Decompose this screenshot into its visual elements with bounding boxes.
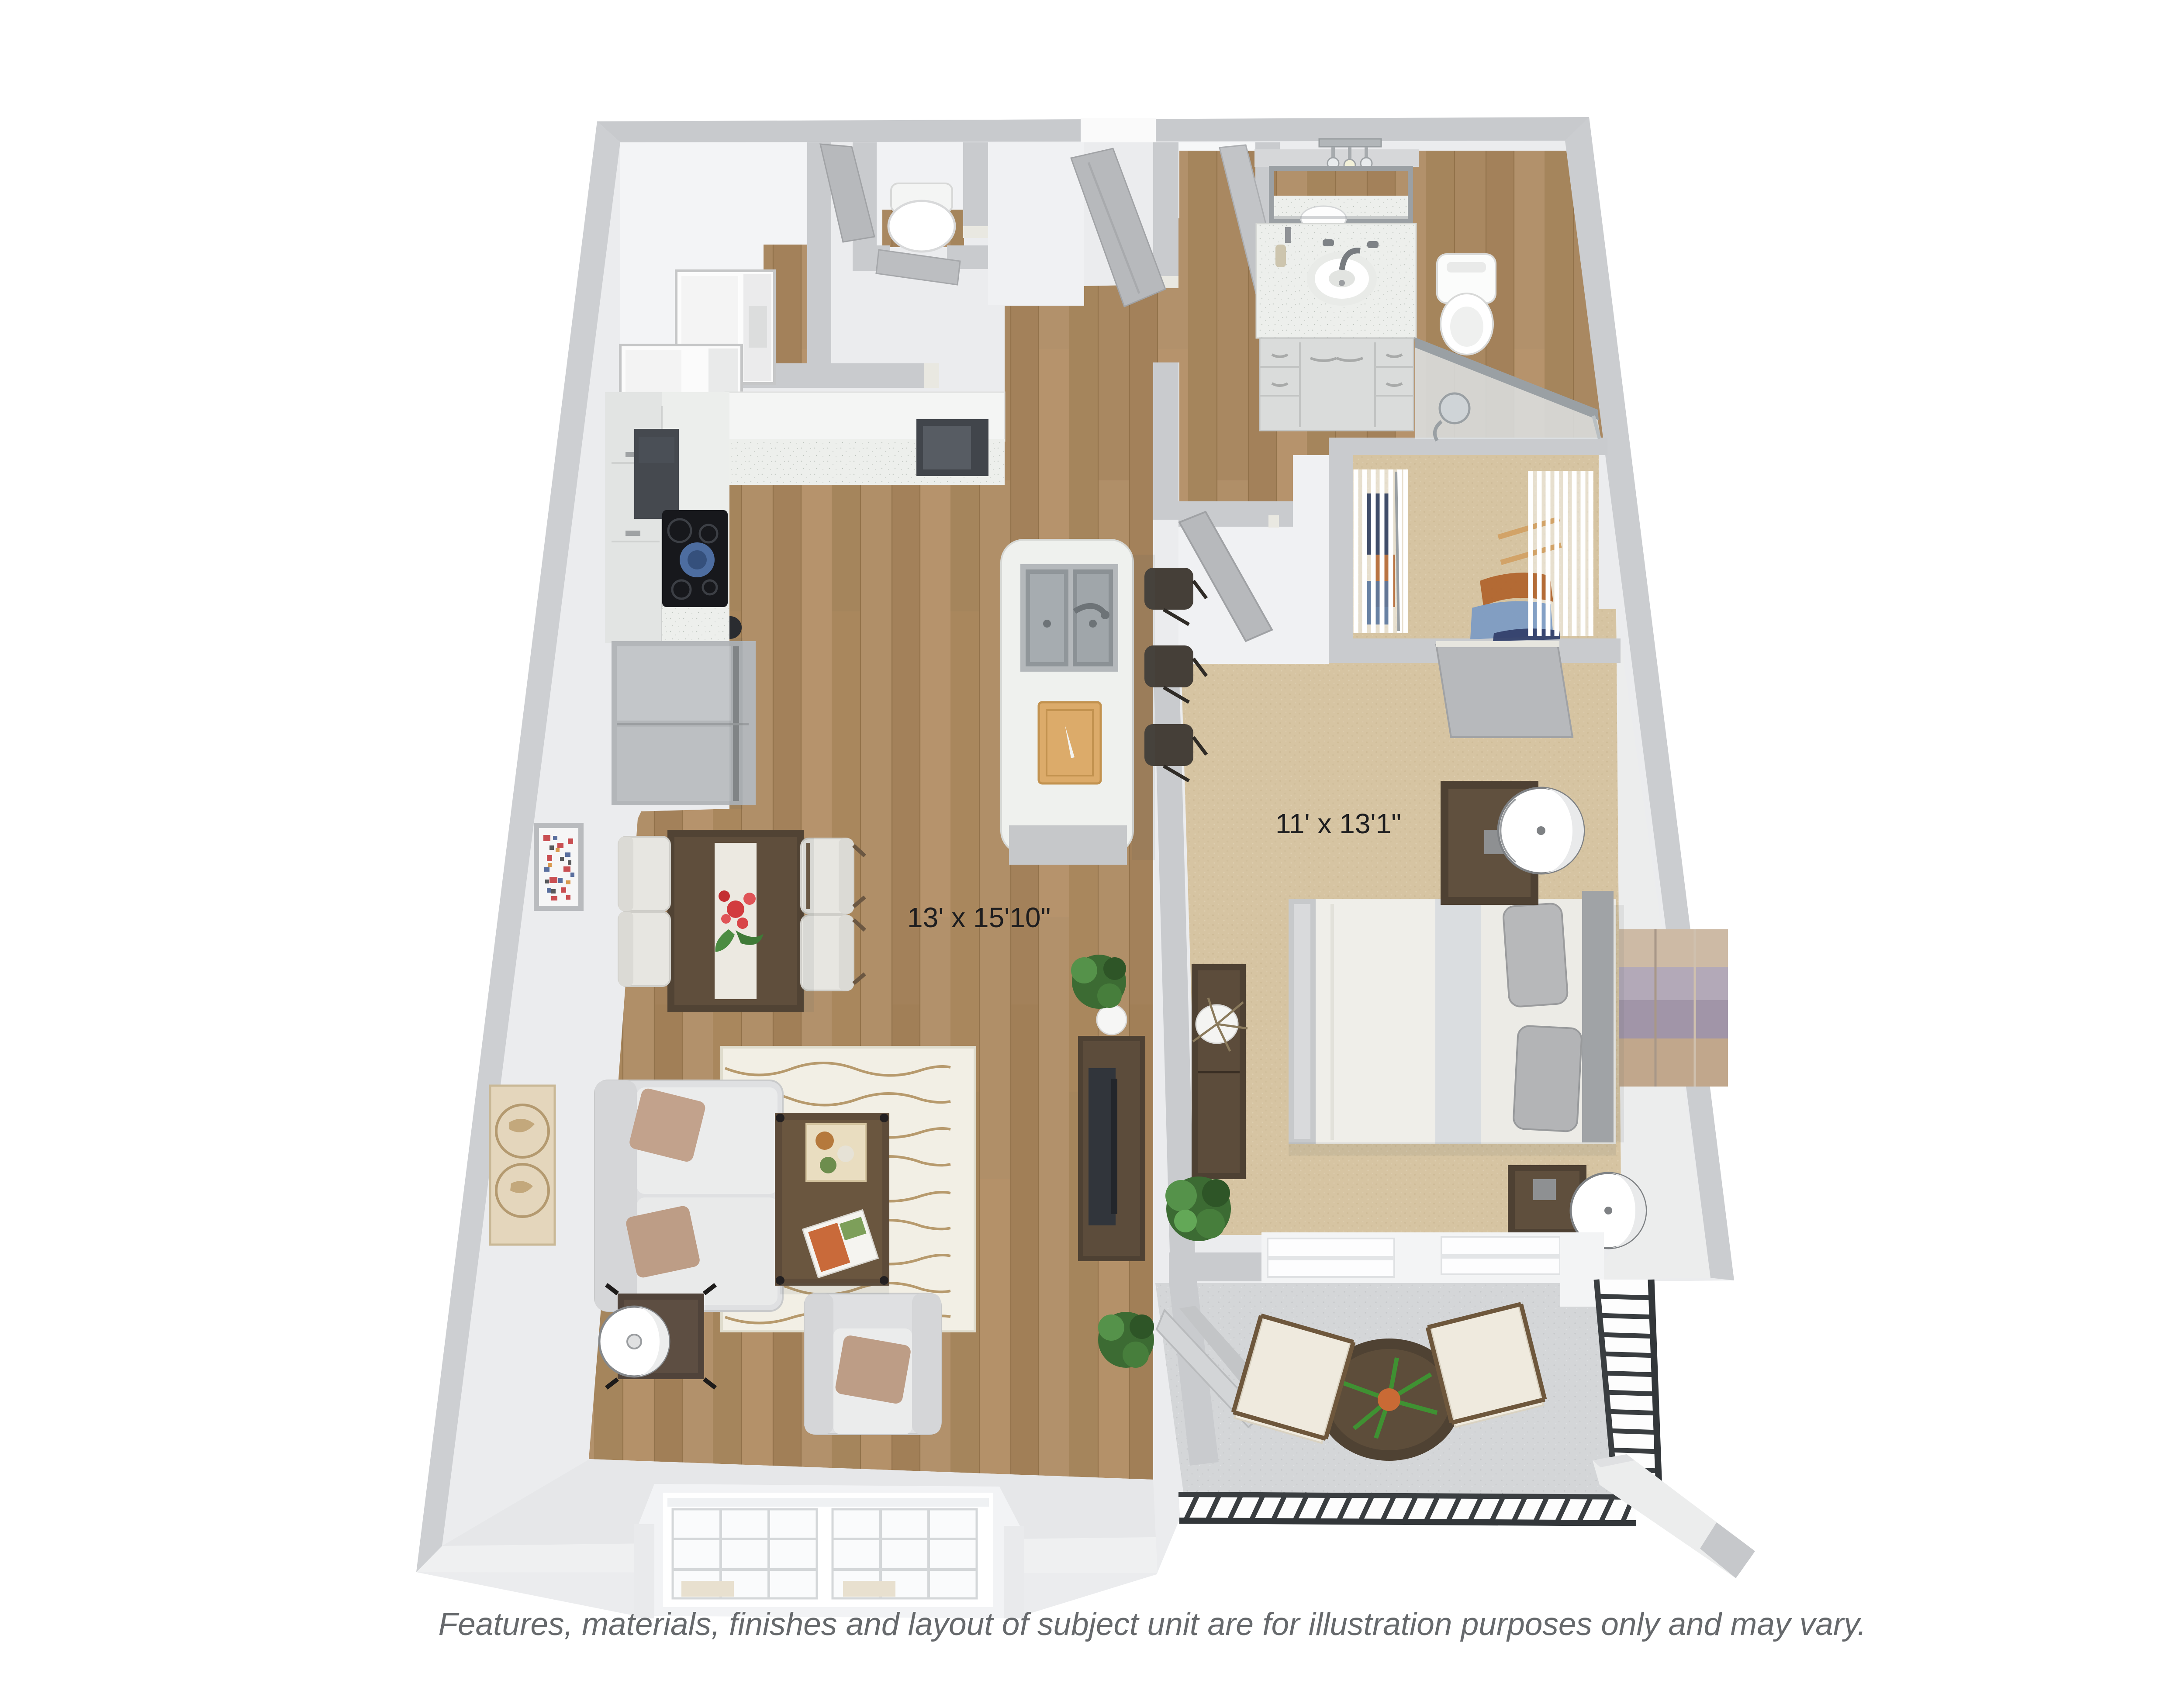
svg-text:Features, materials, finishes: Features, materials, finishes and layout… <box>438 1607 1866 1642</box>
svg-text:11' x 13'1": 11' x 13'1" <box>1275 808 1401 839</box>
svg-text:13' x 15'10": 13' x 15'10" <box>907 902 1051 933</box>
